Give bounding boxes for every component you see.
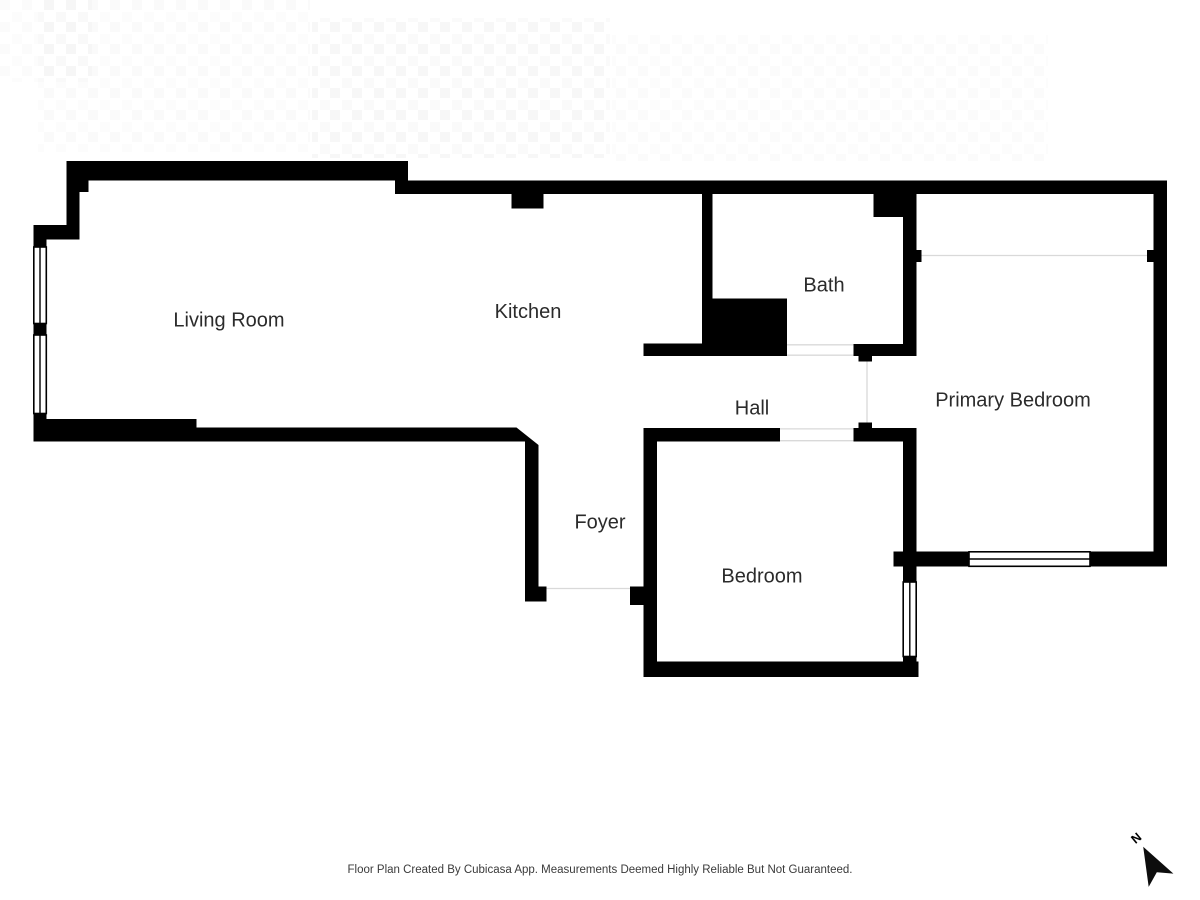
wall-kitchen-bottom [644,344,703,357]
floor-plan-canvas: Living Room Kitchen Bath Hall Primary Be… [0,0,1200,900]
wall-tick-hall-opening-top [859,356,873,362]
wall-bottom-living-and-foyer [34,414,547,602]
ghost-floor-texture [0,0,1048,161]
wall-bath-right [903,194,917,356]
room-label-kitchen: Kitchen [495,301,562,323]
wall-primary-bottom-right [1090,552,1167,567]
wall-bath-corner-notch [874,194,904,217]
wall-bedroom-top-right [854,428,917,442]
footer-disclaimer: Floor Plan Created By Cubicasa App. Meas… [348,864,853,876]
wall-bedroom-top-left [644,428,781,442]
wall-right-exterior [1154,181,1168,567]
walls [34,161,1168,677]
floor-plan-page: Living Room Kitchen Bath Hall Primary Be… [0,0,1200,900]
room-label-living-room: Living Room [173,309,284,331]
north-arrow-label: N [1128,830,1144,847]
wall-top-main [395,181,1167,195]
opening-lines [547,256,1148,589]
wall-left-narrow [67,192,80,226]
wall-top-living-room [67,161,409,181]
ghost-patch [312,18,610,158]
wall-foyer-foot-right [630,587,644,606]
north-arrow-pointer [1131,840,1174,887]
room-label-hall: Hall [735,397,769,419]
wall-tick-hall-opening-bottom [859,423,873,429]
wall-nub-divider-right [1147,250,1154,262]
wall-left-above-window [34,240,47,248]
ghost-patch [38,0,310,152]
room-label-bath: Bath [803,274,844,296]
wall-left-step-arm [34,225,80,240]
wall-left-upper-wide [67,161,89,192]
wall-bedroom-right-upper [903,438,917,582]
wall-window-mullion [34,324,47,336]
wall-shaft-block [702,299,787,357]
wall-bath-left [702,194,713,299]
wall-nub-divider-left [915,250,922,262]
north-arrow-icon: N [1128,830,1173,887]
room-label-foyer: Foyer [574,511,625,533]
room-label-bedroom: Bedroom [721,565,802,587]
ghost-patch [612,35,1048,161]
room-label-primary-bedroom: Primary Bedroom [935,389,1091,411]
wall-bedroom-bottom [644,662,919,678]
wall-kitchen-pier [512,194,544,209]
wall-bedroom-left [644,428,658,677]
